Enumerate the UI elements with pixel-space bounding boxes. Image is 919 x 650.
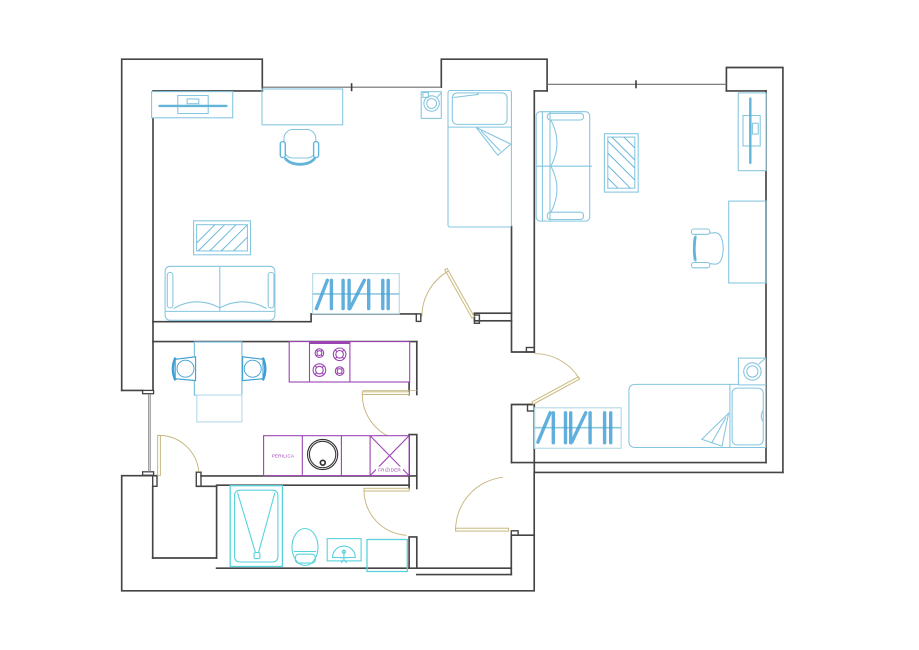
svg-text:FRIŽIDER: FRIŽIDER [378, 466, 401, 473]
svg-text:PERILICA: PERILICA [272, 454, 295, 459]
